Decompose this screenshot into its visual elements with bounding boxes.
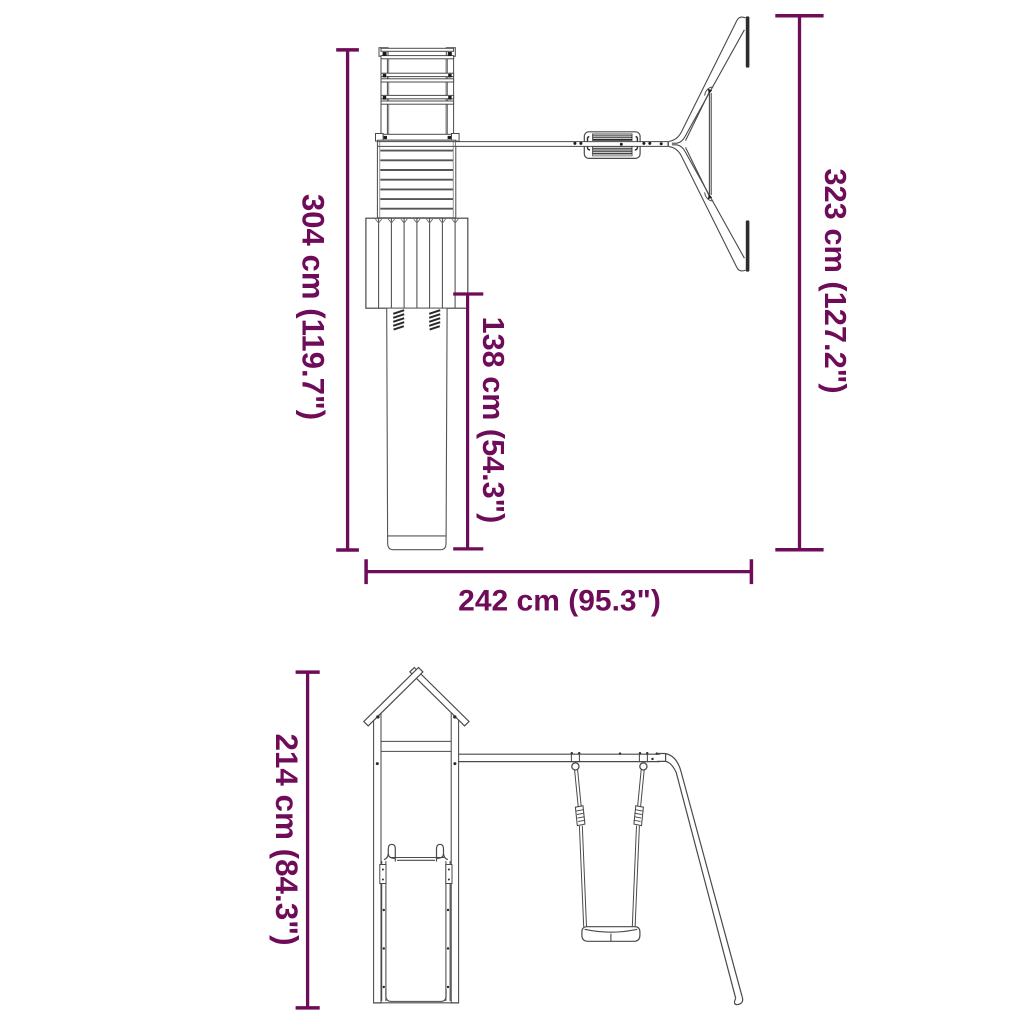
svg-text:138 cm (54.3"): 138 cm (54.3") [476, 317, 510, 524]
svg-text:214 cm (84.3"): 214 cm (84.3") [269, 733, 304, 945]
svg-text:304 cm (119.7"): 304 cm (119.7") [295, 194, 330, 420]
svg-text:242 cm (95.3"): 242 cm (95.3") [458, 584, 661, 617]
svg-text:323 cm (127.2"): 323 cm (127.2") [818, 168, 853, 393]
